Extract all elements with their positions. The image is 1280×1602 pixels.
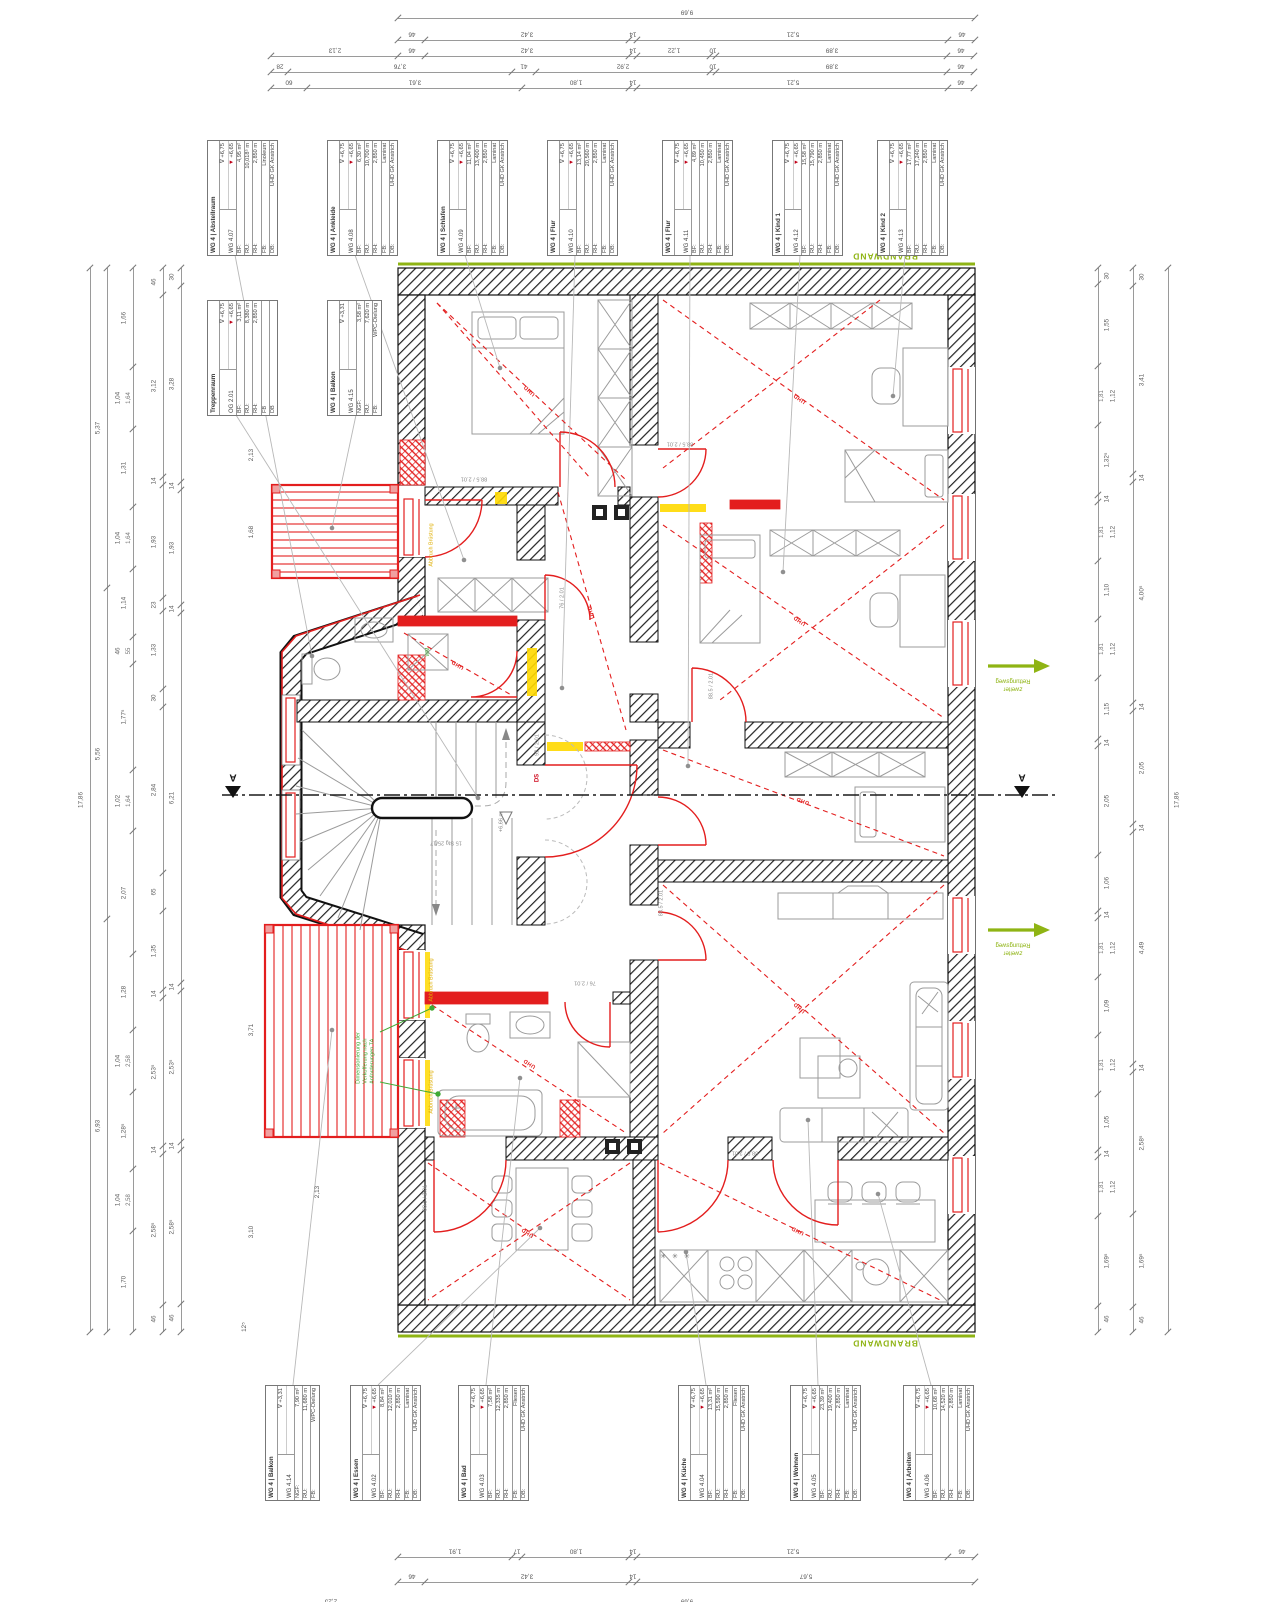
- brandwand-lines: [398, 264, 975, 1336]
- balcony-top-left: [272, 485, 398, 578]
- floor-plan-drawing: [0, 0, 1280, 1602]
- outer-walls: [398, 268, 975, 1332]
- stair-bay-wall: [282, 595, 420, 955]
- floor-plan-sheet: 9,69463,42145,21462,13463,42141,22103,89…: [0, 0, 1280, 1602]
- leader-lines: [235, 255, 931, 1385]
- new-walls: [398, 440, 780, 1137]
- stair-handrail: [372, 798, 472, 818]
- escape-arrows: [988, 659, 1050, 937]
